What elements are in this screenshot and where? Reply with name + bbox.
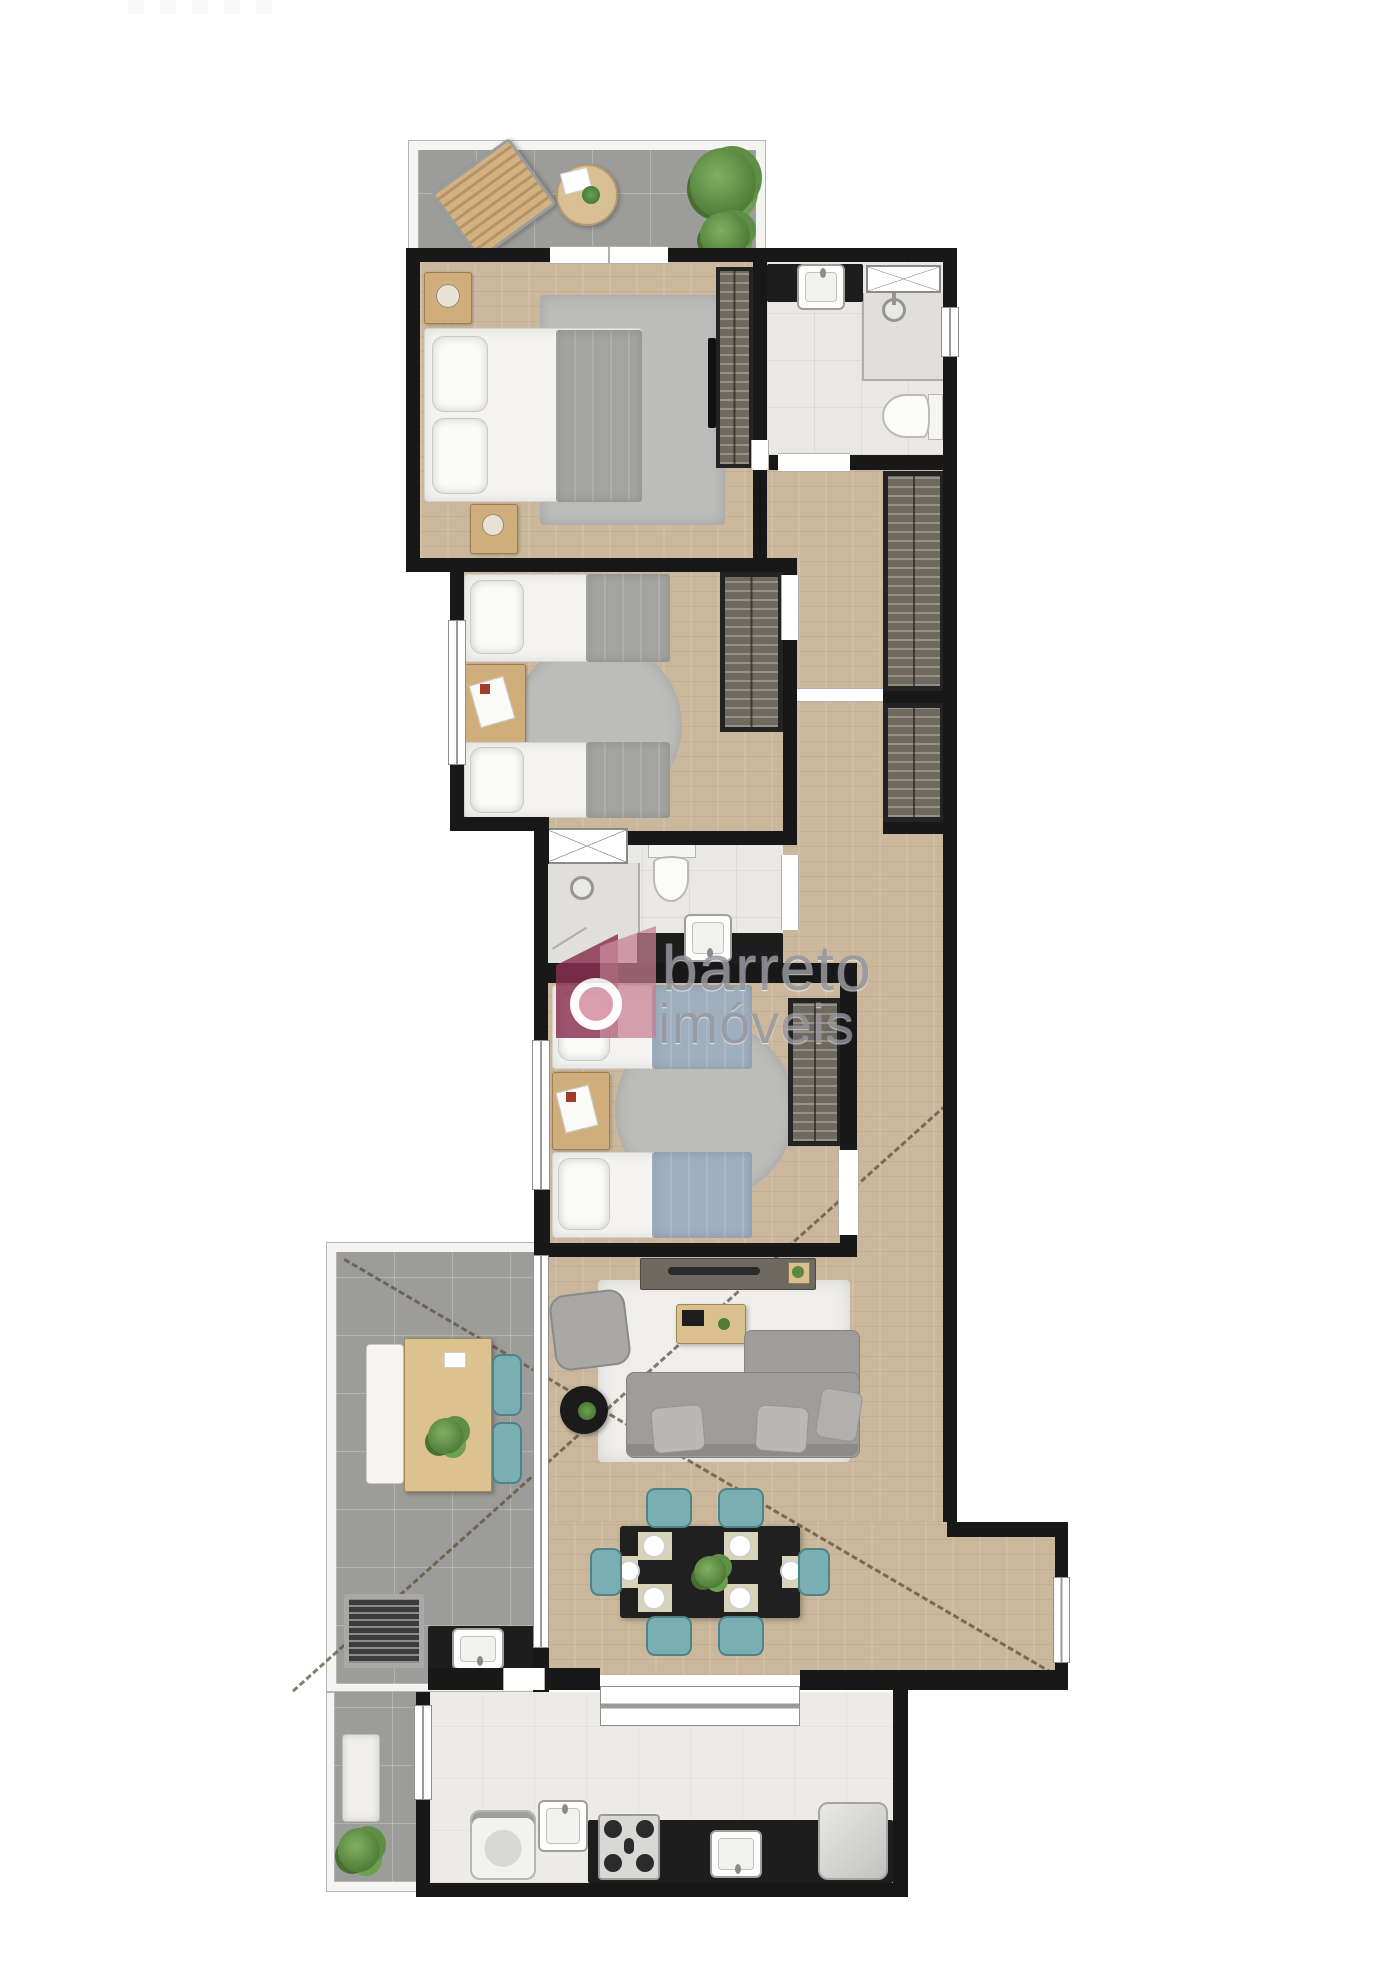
cooktop-knob-icon (624, 1838, 634, 1854)
console-plant-leaf-icon (792, 1266, 804, 1278)
dining-chair (590, 1548, 622, 1596)
gourmet-sink (452, 1628, 504, 1670)
hall-door-threshold (797, 688, 883, 702)
dining-chair (646, 1488, 692, 1528)
shower-arm-icon (892, 293, 896, 305)
sofa-pillow-1 (650, 1404, 706, 1454)
suite-toilet (882, 394, 930, 438)
dining-chair (646, 1616, 692, 1656)
wall-bathroom2-left (534, 831, 548, 983)
gourmet-table-deco-icon (444, 1352, 466, 1368)
watermark-text-line2: imóveis (658, 996, 855, 1052)
sofa-pillow-2 (754, 1404, 809, 1454)
nightstand-decor-icon (482, 514, 504, 536)
wall-dining-right-upper (1055, 1537, 1068, 1577)
dining-window (1053, 1577, 1070, 1663)
plate-icon (642, 1534, 666, 1558)
master-door-opening (751, 440, 769, 470)
refrigerator (818, 1802, 888, 1880)
wall-right-outer (943, 470, 957, 1522)
cooktop-burner-icon (636, 1854, 654, 1872)
hall-closet-2 (883, 703, 945, 822)
bowl-plant-icon (582, 186, 600, 204)
side-table-plant-icon (578, 1402, 596, 1420)
wall-closet-divider (883, 691, 957, 703)
wall-master-right-upper (753, 262, 767, 440)
gourmet-chair (492, 1422, 522, 1484)
laundry-sink (538, 1800, 588, 1852)
service-bench (342, 1734, 380, 1822)
master-tv-icon (708, 338, 716, 428)
nightstand-decor-icon (436, 284, 460, 308)
suite-toilet-tank (928, 394, 943, 440)
bedroom2-window (448, 620, 466, 765)
gourmet-glass-door (533, 1255, 549, 1648)
wall-balcony-bottom (406, 248, 957, 262)
shaft-vent-mid (546, 828, 628, 864)
suite-bath-door-opening (778, 453, 850, 472)
bedroom2-pillow-2 (470, 747, 524, 813)
master-pillow-2 (432, 418, 488, 494)
gourmet-bench (366, 1344, 404, 1484)
bedroom2-door-opening (781, 575, 799, 640)
dining-chair (798, 1548, 830, 1596)
wall-bedroom2-right-lower (783, 640, 797, 845)
dining-centerpiece-plant-icon (694, 1556, 726, 1588)
sofa-chaise (744, 1330, 860, 1378)
wall-kitchen-top-mid (545, 1668, 600, 1690)
washing-machine (470, 1810, 536, 1880)
watermark-logo-ring (570, 978, 622, 1030)
plate-icon (728, 1534, 752, 1558)
gourmet-chair (492, 1354, 522, 1416)
sofa-pillow-3 (814, 1387, 863, 1443)
bedroom3-blanket-2 (652, 1152, 752, 1238)
wall-notch-horizontal (947, 1522, 1068, 1537)
wall-bathroom2-top (628, 831, 797, 845)
nightstand-deco-red-icon (480, 684, 490, 694)
cooktop-burner-icon (636, 1820, 654, 1838)
plate-icon (728, 1586, 752, 1610)
hall-closet-1 (883, 471, 945, 691)
suite-bath-window (941, 307, 959, 357)
service-terrace-door (414, 1705, 432, 1800)
plate-icon (642, 1586, 666, 1610)
bedroom2-pillow-1 (470, 580, 524, 654)
bedroom3-pillow-2 (558, 1158, 610, 1230)
facade-recess-left-upper (420, 572, 450, 831)
top-edge-artifacts (128, 0, 288, 14)
cooktop-burner-icon (604, 1820, 622, 1838)
balcony-sliding-door (550, 246, 668, 264)
suite-bath-sink (797, 264, 845, 310)
coffee-table-cup-icon (718, 1318, 730, 1330)
bedroom3-window (532, 1040, 550, 1190)
bathroom2-toilet (653, 856, 689, 902)
wall-closet-bottom (883, 822, 957, 834)
bathroom2-door-opening (781, 855, 799, 930)
wall-suite-bath-bottom-r (850, 455, 957, 470)
barbecue-grill (344, 1594, 424, 1668)
master-pillow-1 (432, 336, 488, 412)
service-plant-icon (338, 1828, 380, 1872)
shaft-vent-top (866, 265, 941, 293)
dining-chair (718, 1616, 764, 1656)
wall-kitchen-bottom (416, 1883, 908, 1897)
master-blanket (556, 330, 642, 502)
armchair (548, 1288, 633, 1373)
wall-dining-bottom (800, 1670, 1068, 1690)
dining-chair (718, 1488, 764, 1528)
soundbar-icon (668, 1267, 760, 1275)
shower-head-icon (570, 876, 594, 900)
wall-kitchen-right (893, 1675, 908, 1897)
kitchen-door-opening (503, 1668, 545, 1690)
balcony-plant-large-icon (690, 148, 756, 218)
bedroom2-closet (720, 572, 783, 732)
coffee-table-tray-icon (682, 1310, 704, 1326)
floor-plan-canvas: barreto imóveis (0, 0, 1400, 1974)
cooktop-burner-icon (604, 1854, 622, 1872)
nightstand-deco-red-icon (566, 1092, 576, 1102)
gourmet-table-plant-icon (428, 1418, 464, 1454)
wall-kitchen-top-left (428, 1668, 503, 1690)
wall-bedroom3-bottom (534, 1243, 857, 1257)
master-wardrobe (716, 267, 753, 468)
watermark-text-line1: barreto (662, 936, 872, 1000)
wall-master-left (406, 248, 420, 572)
kitchen-passthrough-window (600, 1686, 800, 1726)
watermark-logo (556, 926, 656, 1038)
bedroom2-blanket-2 (586, 742, 670, 818)
kitchen-sink (710, 1830, 762, 1878)
wall-suite-bath-right (943, 252, 957, 470)
facade-recess-left-lower (420, 831, 534, 1242)
bedroom3-door-opening (838, 1150, 859, 1235)
wall-bedroom2-bottom (450, 817, 549, 831)
wall-master-right-lower (753, 470, 767, 572)
wall-bedroom3-corner (535, 1188, 550, 1257)
wall-bedroom2-right-upper (783, 558, 797, 575)
bedroom2-blanket-1 (586, 574, 670, 662)
